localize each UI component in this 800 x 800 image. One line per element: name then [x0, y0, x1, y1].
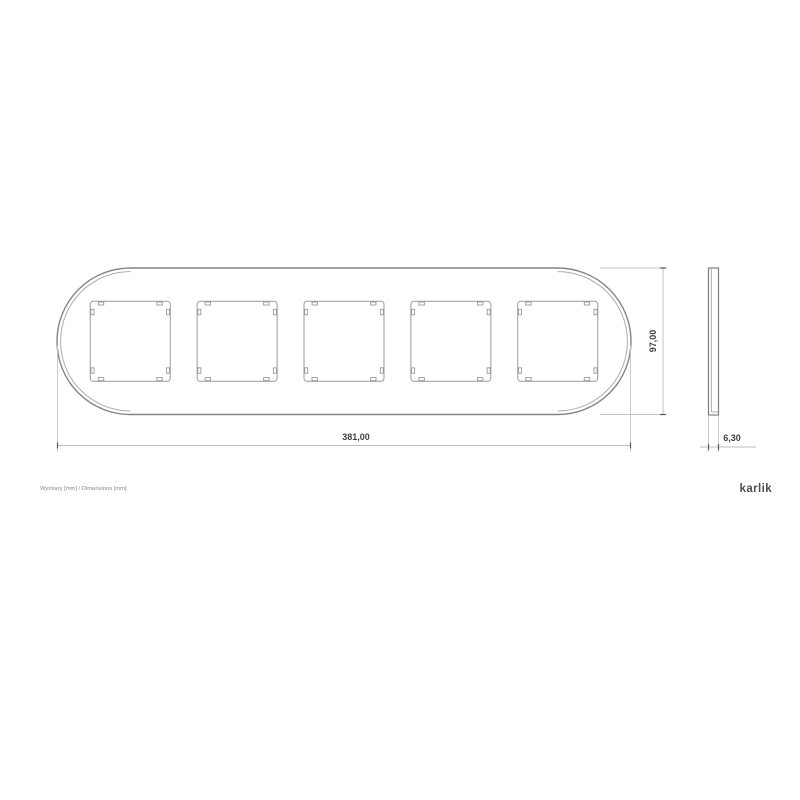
technical-drawing: 381,00 97,00 6,30 Wymiary [mm] / Dimensi…	[0, 0, 800, 800]
module-opening	[90, 301, 170, 381]
side-view	[709, 268, 719, 415]
mounting-tab	[584, 302, 590, 305]
mounting-tab	[312, 378, 318, 381]
drawing-page: 381,00 97,00 6,30 Wymiary [mm] / Dimensi…	[0, 0, 800, 800]
mounting-tab	[98, 302, 104, 305]
mounting-tab	[205, 378, 211, 381]
mounting-tab	[273, 309, 276, 315]
mounting-tab	[157, 378, 163, 381]
mounting-tab	[526, 378, 532, 381]
mounting-tab	[487, 368, 490, 374]
mounting-tab	[371, 302, 377, 305]
mounting-tab	[412, 368, 415, 374]
mounting-tab	[487, 309, 490, 315]
mounting-tab	[264, 378, 270, 381]
mounting-tab	[518, 309, 521, 315]
frame-outer-outline	[57, 268, 631, 415]
mounting-tab	[412, 309, 415, 315]
mounting-tab	[380, 309, 383, 315]
mounting-tab	[157, 302, 163, 305]
width-dimension: 381,00	[58, 345, 631, 452]
mounting-tab	[419, 302, 425, 305]
brand-logo: karlik	[740, 483, 773, 495]
mounting-tab	[371, 378, 377, 381]
mounting-tab	[198, 368, 201, 374]
mounting-tab	[98, 378, 104, 381]
width-dimension-label: 381,00	[342, 432, 370, 442]
mounting-tab	[380, 368, 383, 374]
side-profile-outline	[709, 268, 719, 415]
mounting-tab	[584, 378, 590, 381]
mounting-tab	[312, 302, 318, 305]
mounting-tab	[305, 309, 308, 315]
mounting-tab	[91, 368, 94, 374]
mounting-tab	[264, 302, 270, 305]
mounting-tab	[477, 302, 483, 305]
height-dimension-label: 97,00	[648, 330, 658, 353]
mounting-tab	[167, 309, 170, 315]
mounting-tab	[198, 309, 201, 315]
module-opening	[304, 301, 384, 381]
frame-chamfer-arc-right	[558, 272, 628, 411]
depth-dimension-label: 6,30	[723, 433, 741, 443]
mounting-tab	[91, 309, 94, 315]
frame-chamfer-arc-left	[61, 272, 131, 411]
module-opening-outline	[90, 301, 170, 381]
units-note: Wymiary [mm] / Dimensions [mm]	[40, 486, 127, 492]
module-opening-outline	[518, 301, 598, 381]
module-opening	[518, 301, 598, 381]
mounting-tab	[419, 378, 425, 381]
mounting-tab	[477, 378, 483, 381]
mounting-tab	[594, 309, 597, 315]
module-openings	[90, 301, 598, 381]
module-opening	[197, 301, 277, 381]
depth-dimension: 6,30	[700, 416, 756, 452]
mounting-tab	[526, 302, 532, 305]
mounting-tab	[518, 368, 521, 374]
module-opening-outline	[411, 301, 491, 381]
module-opening	[411, 301, 491, 381]
module-opening-outline	[197, 301, 277, 381]
mounting-tab	[305, 368, 308, 374]
mounting-tab	[273, 368, 276, 374]
mounting-tab	[594, 368, 597, 374]
module-opening-outline	[304, 301, 384, 381]
mounting-tab	[205, 302, 211, 305]
mounting-tab	[167, 368, 170, 374]
front-view	[57, 268, 631, 415]
